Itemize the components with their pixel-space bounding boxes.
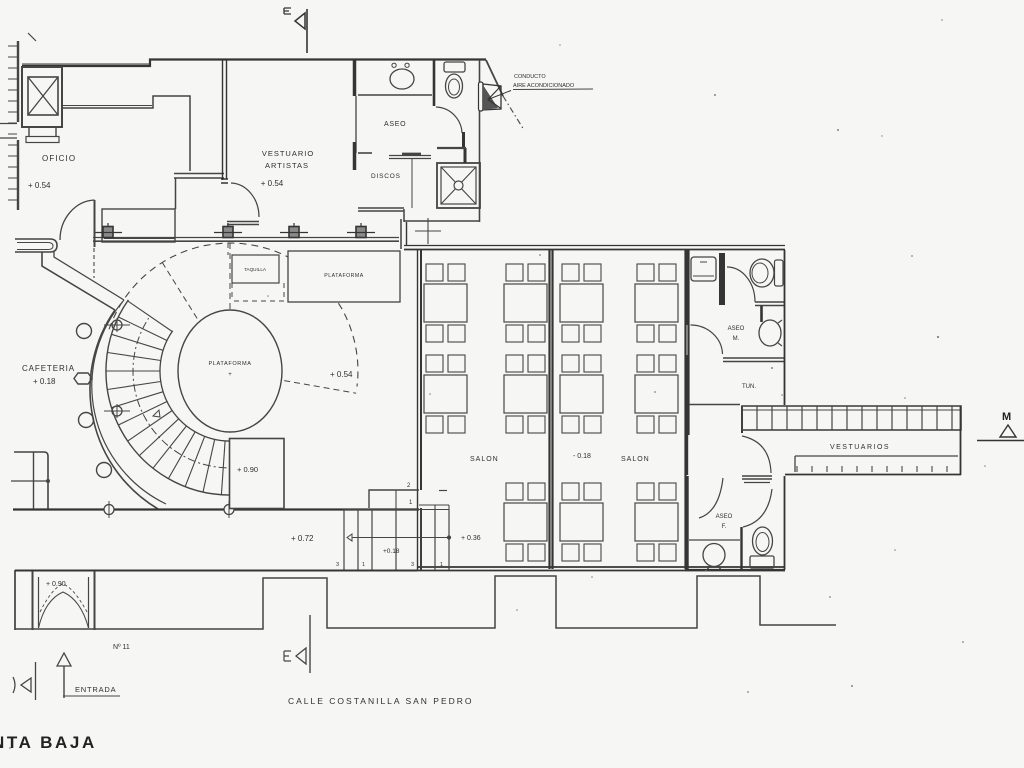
svg-text:DISCOS: DISCOS (371, 173, 401, 180)
svg-text:M.: M. (733, 336, 740, 342)
svg-text:ASEO: ASEO (716, 514, 733, 520)
svg-text:SALON: SALON (470, 456, 499, 463)
svg-text:+ 0.36: + 0.36 (461, 535, 481, 542)
svg-text:+ 0.54: + 0.54 (28, 181, 51, 190)
svg-text:OFICIO: OFICIO (42, 154, 76, 163)
svg-text:TAQUILLA: TAQUILLA (244, 267, 267, 272)
svg-text:M: M (1002, 411, 1011, 423)
svg-text:+ 0.54: + 0.54 (330, 370, 353, 379)
svg-text:+ 0.54: + 0.54 (261, 179, 284, 188)
svg-text:ASEO: ASEO (384, 121, 406, 128)
svg-text:ENTRADA: ENTRADA (75, 685, 116, 694)
svg-text:VESTUARIO: VESTUARIO (262, 149, 314, 158)
svg-text:+ 0.72: + 0.72 (291, 534, 314, 543)
svg-text:- 0.18: - 0.18 (573, 453, 591, 460)
svg-text:F.: F. (722, 524, 727, 530)
svg-text:+ 0.90: + 0.90 (237, 465, 258, 474)
svg-text:SALON: SALON (621, 456, 650, 463)
svg-text:+: + (228, 372, 232, 378)
svg-text:CAFETERIA: CAFETERIA (22, 364, 75, 373)
svg-text:+ 0.90: + 0.90 (46, 581, 66, 588)
svg-text:PLATAFORMA: PLATAFORMA (324, 273, 363, 279)
svg-text:CONDUCTO: CONDUCTO (514, 74, 546, 80)
svg-text:CALLE COSTANILLA SAN PEDRO: CALLE COSTANILLA SAN PEDRO (288, 696, 474, 706)
svg-text:AIRE ACONDICIONADO: AIRE ACONDICIONADO (513, 83, 575, 89)
svg-text:ASEO: ASEO (728, 326, 745, 332)
svg-text:TUN.: TUN. (742, 384, 756, 390)
svg-text:+0.18: +0.18 (383, 548, 400, 555)
svg-text:1: 1 (440, 562, 443, 568)
svg-text:3: 3 (336, 562, 339, 568)
svg-text:NTA BAJA: NTA BAJA (0, 733, 97, 752)
svg-text:ARTISTAS: ARTISTAS (265, 161, 309, 170)
svg-text:+ 0.18: + 0.18 (33, 377, 56, 386)
svg-text:Nº 11: Nº 11 (113, 644, 130, 651)
svg-text:1: 1 (362, 562, 365, 568)
svg-text:PLATAFORMA: PLATAFORMA (208, 361, 251, 367)
svg-text:3: 3 (411, 562, 414, 568)
svg-text:VESTUARIOS: VESTUARIOS (830, 444, 890, 451)
